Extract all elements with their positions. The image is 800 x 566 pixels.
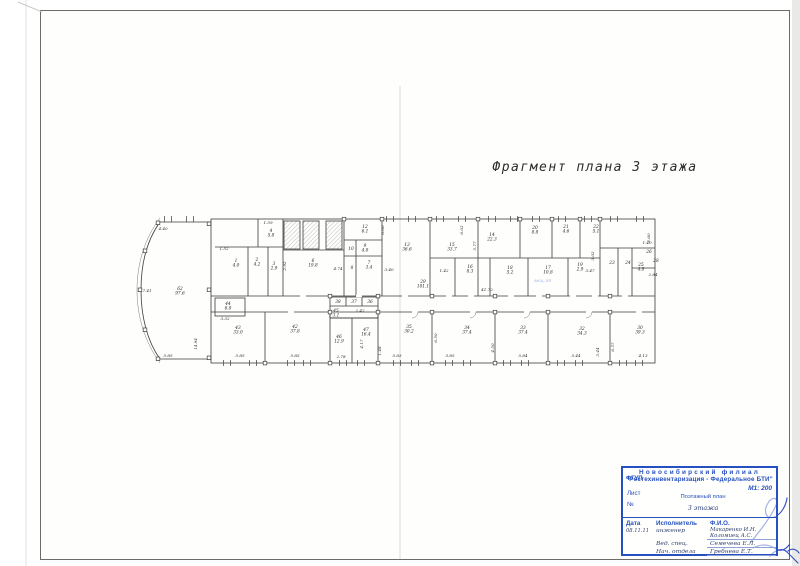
dimension-label: 1.48 (377, 346, 382, 356)
dimension-label: 5.85 (163, 353, 173, 358)
dimension-label: 2.42 (354, 308, 365, 313)
empty-cell (623, 540, 653, 541)
empty-cell (623, 548, 653, 549)
column-marker (328, 361, 332, 365)
column-marker (493, 310, 497, 314)
dept-head-name: Гребнева Е.Т. (707, 548, 776, 556)
column-marker (342, 217, 346, 221)
column-marker (207, 222, 211, 226)
dimension-label: 7.41 (142, 288, 151, 293)
column-marker (428, 217, 432, 221)
dimension-label: 5.85 (235, 353, 245, 358)
room-label: 446.0 (224, 302, 231, 312)
room-label: 94.0 (361, 244, 369, 254)
column-marker (493, 361, 497, 365)
org-prefix: ФГУП (626, 476, 643, 482)
date-value: 08.11.11 (623, 527, 653, 534)
dimension-label: 6.60 (380, 225, 385, 235)
title-block: Новосибирский филиал "Ростехинвентаризац… (621, 466, 778, 556)
room-label: 192.9 (576, 263, 584, 273)
lead-spec-name: Семечева Е.Л. (707, 540, 776, 548)
dimension-label: 14.94 (193, 338, 198, 350)
room-label: 1533.7 (447, 243, 457, 253)
room-label: 3437.4 (462, 326, 472, 336)
organization-name: Новосибирский филиал "Ростехинвентаризац… (623, 469, 776, 483)
room-label: 32.9 (270, 262, 278, 272)
room-label: 38 (335, 300, 341, 305)
room-label: 1422.3 (486, 233, 497, 243)
scale-value: М1: 200 (748, 485, 772, 492)
table-row: Нач. отдела Гребнева Е.Т. (623, 548, 776, 556)
dimension-label: 5.44 (571, 353, 581, 358)
room-label: 619.8 (308, 259, 318, 269)
col-role: Исполнитель (653, 519, 707, 527)
plan-title: Фрагмент плана 3 этажа (470, 160, 720, 175)
room-label: 24 (624, 261, 631, 266)
dimension-label: 41.72 (480, 287, 493, 292)
dimension-label: 2.84 (647, 272, 658, 277)
column-marker (430, 310, 434, 314)
room-label: 3530.2 (404, 325, 414, 335)
column-marker (476, 217, 480, 221)
room-label: 168.3 (467, 265, 474, 275)
column-marker (380, 217, 384, 221)
engineer-names: Макаренко И.Н. Коломиец А.С. (707, 527, 776, 540)
corridor-stamp: АКЦ-ЭП (534, 278, 552, 283)
room-label: 10 (348, 247, 354, 252)
column-marker (376, 310, 380, 314)
room-label: 36 (367, 300, 373, 305)
dimension-label: 2.92 (282, 261, 287, 272)
room-label: 1710.8 (543, 266, 553, 276)
column-marker (430, 361, 434, 365)
column-marker (143, 249, 147, 253)
room-label: 23 (608, 261, 615, 266)
document-type: Поэтажный план (653, 494, 753, 500)
room-label: 73.4 (366, 261, 373, 271)
column-marker (608, 294, 612, 298)
role-lead-spec: Вед. спец. (653, 540, 707, 547)
column-marker (207, 356, 211, 360)
engineer-name-2: Коломиец А.С. (710, 534, 774, 540)
column-marker (143, 328, 147, 332)
dimension-label: 1.52 (219, 246, 229, 251)
dimension-label: 4.74 (332, 266, 343, 271)
dimension-label: 3.40 (384, 267, 394, 272)
dimension-label: 5.77 (472, 241, 477, 251)
building-walls (137, 218, 655, 363)
column-marker (546, 310, 550, 314)
column-marker (376, 294, 380, 298)
scanned-floor-plan-page: 6297.614.024.232.945.8619.8126.194.01087… (0, 0, 800, 566)
column-marker (518, 217, 522, 221)
dimension-label: 5.85 (290, 353, 300, 358)
room-label: 3234.3 (577, 327, 587, 337)
room-label: 29101.1 (417, 280, 429, 290)
role-dept-head: Нач. отдела (653, 548, 707, 555)
table-row: 08.11.11 инженер Макаренко И.Н. Коломиец… (623, 527, 776, 540)
title-block-divider (623, 517, 776, 518)
column-marker (546, 361, 550, 365)
room-label: 3337.4 (518, 326, 528, 336)
dimension-label: 1.59 (263, 220, 273, 225)
table-row: Вед. спец. Семечева Е.Л. (623, 540, 776, 548)
column-marker (550, 217, 554, 221)
dimension-label: 6.57 (610, 342, 615, 352)
dimension-label: 3.44 (595, 347, 600, 357)
table-header-row: Дата Исполнитель Ф.И.О. (623, 519, 776, 527)
signature-table: Дата Исполнитель Ф.И.О. 08.11.11 инженер… (623, 519, 776, 556)
dimension-label: 6.50 (433, 333, 438, 343)
sheet-label: Лист (627, 490, 640, 497)
room-label: 45.8 (268, 229, 275, 239)
room-label: 254.8 (637, 263, 645, 273)
document-floor: 3 этажа (653, 504, 753, 512)
dimension-label: 1.42 (439, 268, 449, 273)
org-line2: "Ростехинвентаризация - Федеральное БТИ" (623, 476, 776, 483)
dimension-label: 4.40 (157, 226, 168, 231)
column-marker (430, 294, 434, 298)
column-marker (578, 217, 582, 221)
room-label: 6297.6 (175, 287, 185, 297)
dimension-label: 5.83 (392, 353, 402, 358)
col-name: Ф.И.О. (707, 519, 776, 527)
room-label: 4612.9 (334, 335, 344, 345)
column-marker (546, 294, 550, 298)
column-marker (328, 310, 332, 314)
dimension-label: 4.17 (359, 339, 364, 350)
room-label: 24.2 (253, 258, 261, 268)
room-label: 214.6 (562, 225, 570, 235)
column-marker (493, 294, 497, 298)
column-marker (263, 361, 267, 365)
dimension-label: 4.50 (490, 343, 495, 354)
dimension-label: 3.02 (590, 251, 595, 261)
column-marker (598, 217, 602, 221)
column-marker (376, 361, 380, 365)
col-date: Дата (623, 519, 653, 527)
dimension-label: 3.47 (585, 268, 595, 273)
room-label: 37 (351, 300, 357, 305)
room-label: 4716.4 (361, 328, 371, 338)
role-engineer: инженер (653, 527, 707, 534)
column-marker (156, 357, 160, 361)
room-label: 8 (351, 266, 354, 271)
room-label: 1336.6 (402, 243, 412, 253)
room-label: 26 (645, 250, 652, 255)
room-label: 208.8 (531, 226, 538, 236)
column-marker (328, 294, 332, 298)
room-label: 225.1 (592, 225, 599, 235)
room-label: 14.0 (232, 259, 240, 269)
column-marker (608, 361, 612, 365)
dimension-label: 3.32 (220, 316, 230, 321)
org-line1: Новосибирский филиал (623, 469, 776, 476)
dimension-label: 3.85 (445, 353, 455, 358)
room-label: 185.2 (507, 266, 514, 276)
column-marker (156, 221, 160, 225)
plan-annotations: 6297.614.024.232.945.8619.8126.194.01087… (138, 216, 659, 366)
dimension-label: 1.40 (642, 240, 652, 245)
dimension-label: 2.78 (335, 354, 346, 359)
column-marker (138, 288, 142, 292)
dimension-label: 6.02 (459, 225, 464, 235)
room-label: 4237.8 (290, 325, 300, 335)
room-label: 453.1 (332, 309, 339, 319)
scan-corner-mark (18, 2, 42, 12)
room-label: 4333.0 (233, 326, 243, 336)
column-marker (608, 310, 612, 314)
column-marker (207, 288, 211, 292)
dimension-label: 5.84 (518, 353, 528, 358)
room-label: 126.1 (362, 225, 369, 235)
room-label: 3039.3 (635, 326, 645, 336)
dimension-label: 4.13 (637, 353, 648, 358)
room-label: 28 (652, 259, 659, 264)
sheet-number-label: № (627, 501, 634, 508)
